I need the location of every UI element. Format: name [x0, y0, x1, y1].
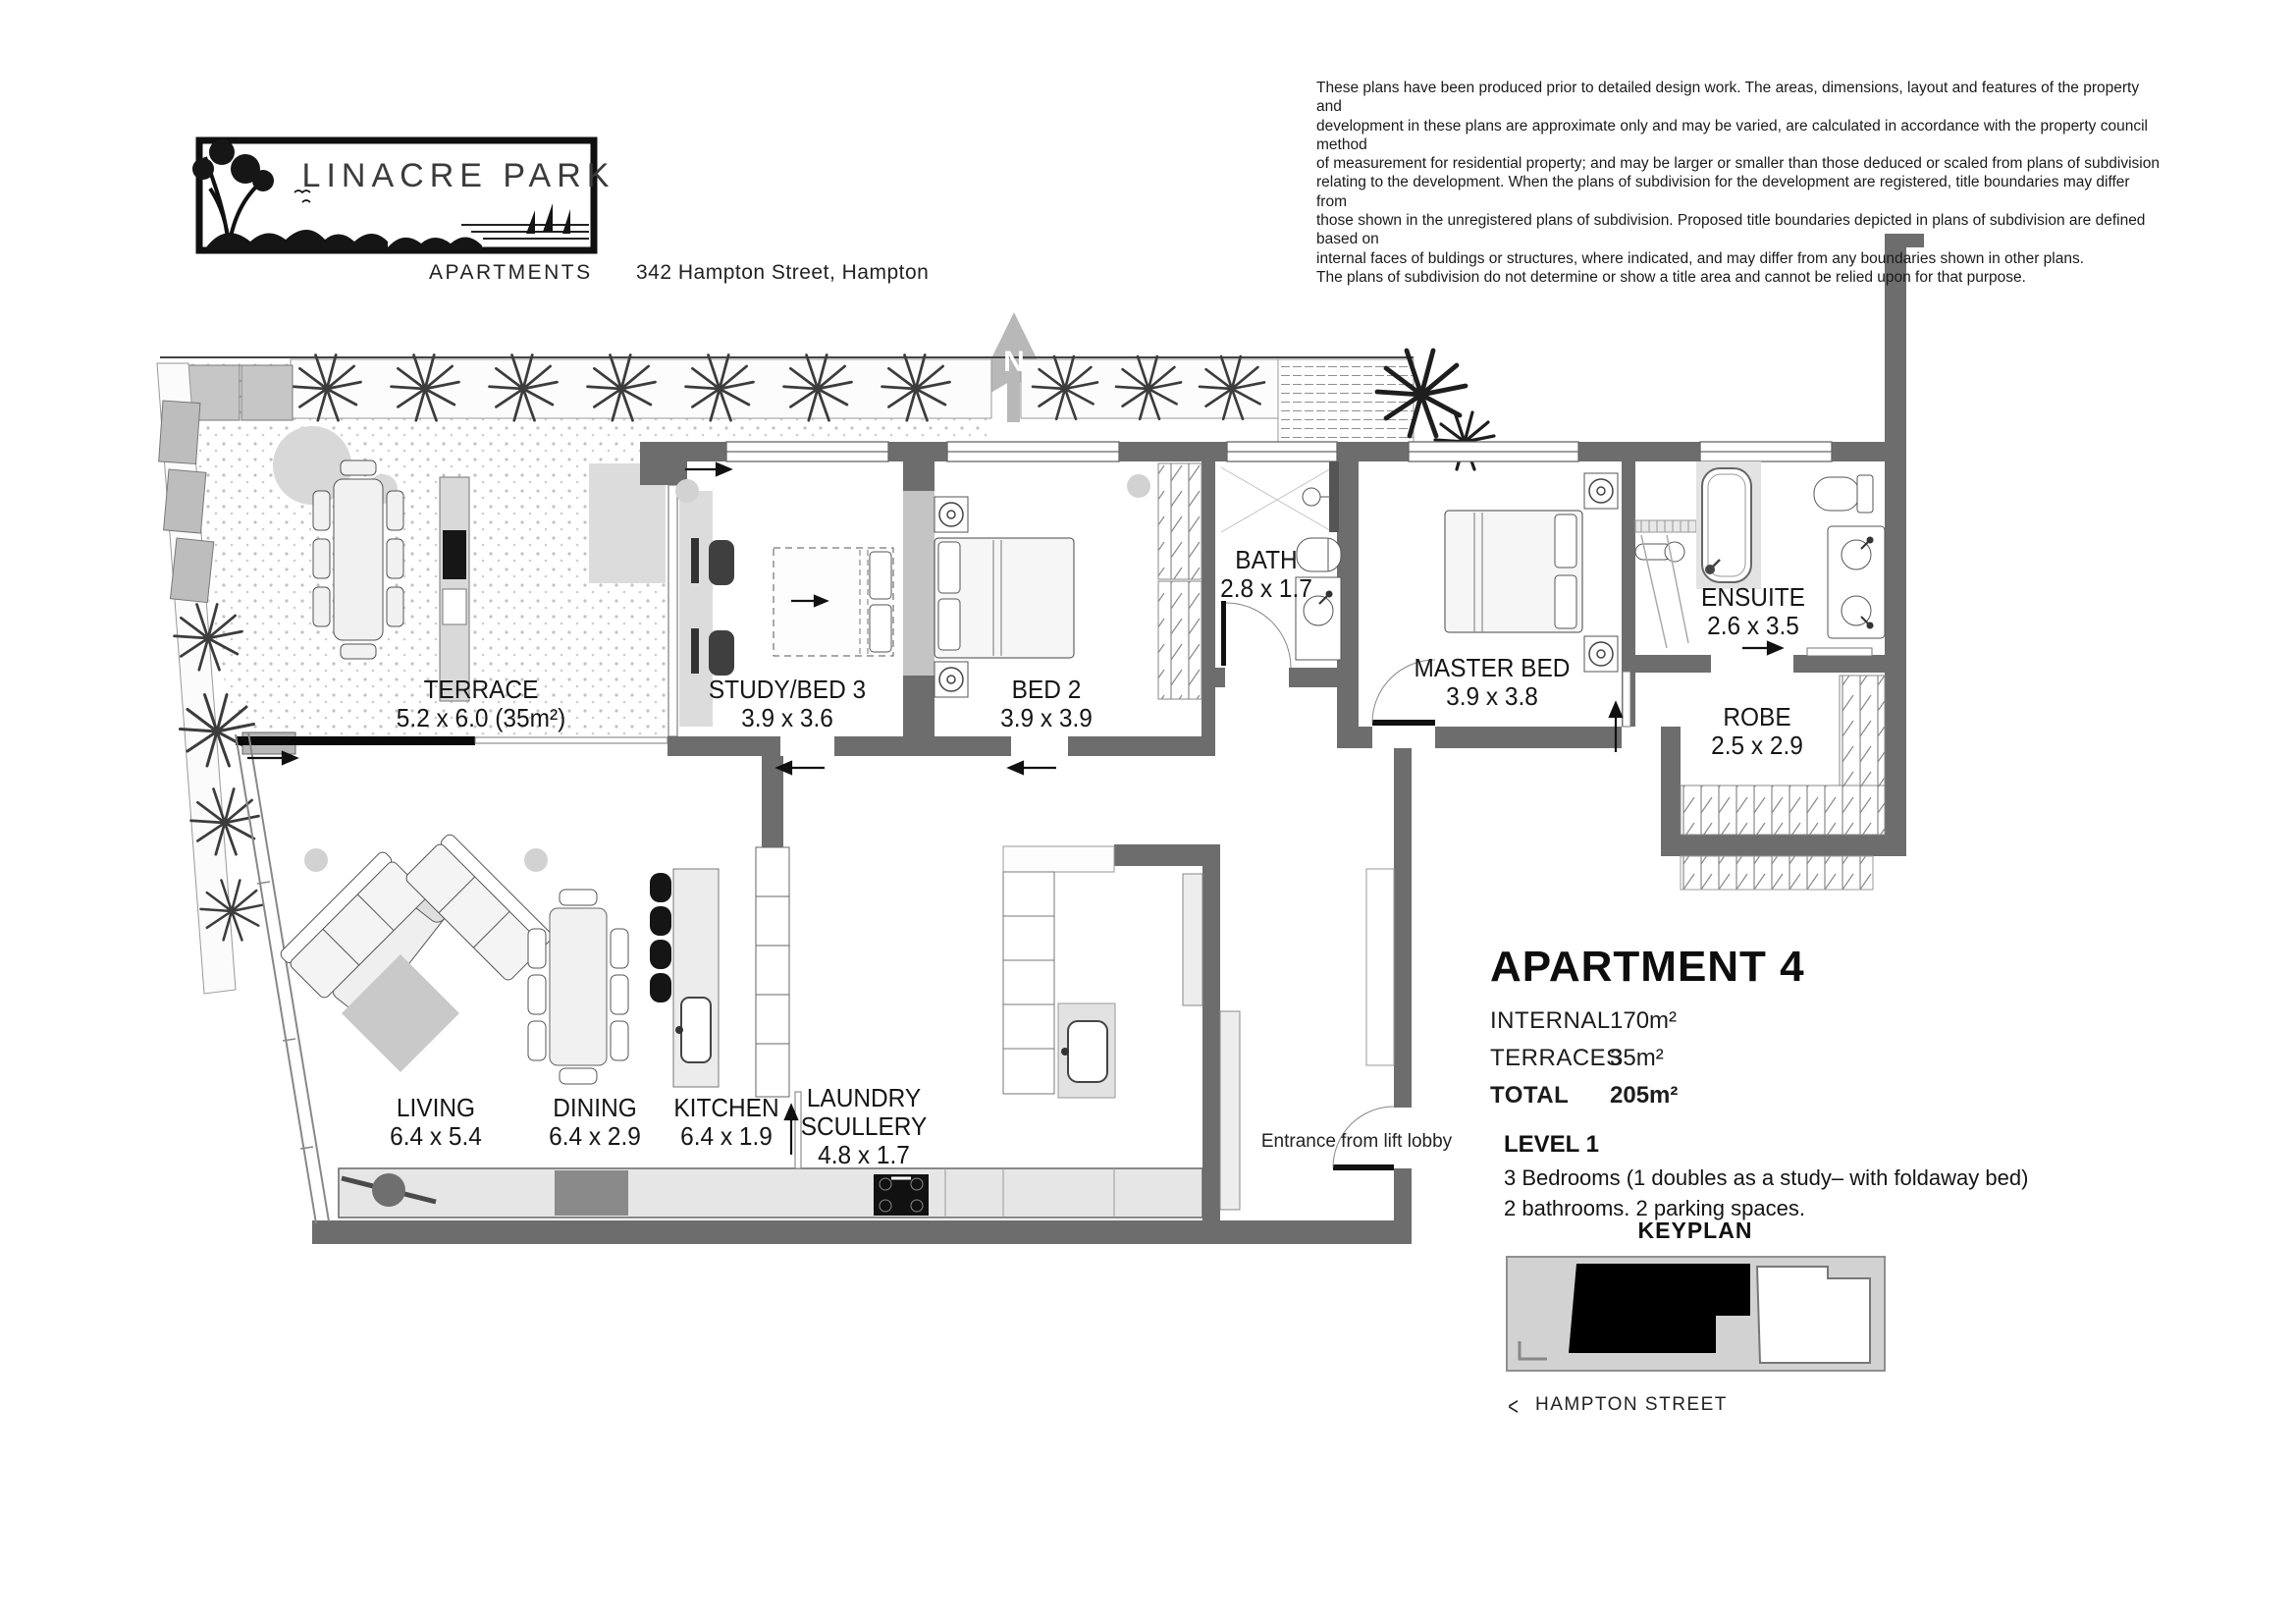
bed2-room: [934, 463, 1201, 699]
disclaimer-line: relating to the development. When the pl…: [1316, 173, 2161, 211]
robe-slider: [1623, 672, 1630, 727]
floor-plan-page: { "header": { "logo_title": "LINACRE PAR…: [0, 0, 2296, 1624]
wardrobe: [1158, 463, 1201, 579]
stool: [650, 873, 671, 902]
room-label-study: STUDY/BED 3 3.9 x 3.6: [709, 676, 866, 732]
cabinets: [1003, 872, 1054, 1094]
room-name: MASTER BED: [1415, 654, 1571, 682]
room-label-laundry: LAUNDRY SCULLERY 4.8 x 1.7: [801, 1084, 928, 1169]
room-dims: 5.2 x 6.0 (35m²): [397, 704, 566, 732]
terrace-slider: [236, 736, 475, 745]
room-dims: 6.4 x 5.4: [390, 1122, 482, 1151]
ensuite-slider: [1807, 648, 1872, 656]
desk-chair: [709, 630, 734, 676]
logo-title: LINACRE PARK: [302, 157, 615, 195]
level-block: LEVEL 1 3 Bedrooms (1 doubles as a study…: [1504, 1131, 2040, 1221]
pantry: [1220, 1011, 1240, 1210]
room-dims: 3.9 x 3.8: [1415, 682, 1571, 711]
pantry: [1183, 874, 1202, 1005]
room-label-kitchen: KITCHEN 6.4 x 1.9: [673, 1094, 778, 1151]
divider-wall: [903, 491, 934, 676]
room-name: BED 2: [1000, 676, 1093, 704]
room-label-bath: BATH 2.8 x 1.7: [1220, 546, 1312, 603]
room-name: KITCHEN: [673, 1094, 778, 1122]
info-row-terraces: TERRACES 35m²: [1490, 1045, 2040, 1072]
info-label: INTERNAL: [1490, 1007, 1610, 1035]
disclaimer-line: The plans of subdivision do not determin…: [1316, 268, 2161, 287]
sink: [681, 998, 711, 1062]
room-dims: 6.4 x 1.9: [673, 1122, 778, 1151]
wardrobe: [1681, 785, 1885, 835]
room-name: ROBE: [1711, 703, 1803, 731]
room-label-master: MASTER BED 3.9 x 3.8: [1415, 654, 1571, 711]
stool: [650, 973, 671, 1002]
stool: [650, 906, 671, 936]
level-desc: 2 bathrooms. 2 parking spaces.: [1504, 1196, 2040, 1221]
room-dims: 2.5 x 2.9: [1711, 731, 1803, 760]
room-name: TERRACE: [397, 676, 566, 704]
room-label-bed2: BED 2 3.9 x 3.9: [1000, 676, 1093, 732]
walkthrough-shower: [1635, 520, 1696, 648]
planter-top: [291, 359, 991, 418]
room-dims: 4.8 x 1.7: [801, 1141, 928, 1169]
info-value: 35m²: [1610, 1045, 1664, 1072]
north-label: N: [1003, 346, 1025, 379]
room-dims: 3.9 x 3.9: [1000, 704, 1093, 732]
disclaimer: These plans have been produced prior to …: [1316, 79, 2161, 287]
info-value: 205m²: [1610, 1082, 1678, 1110]
master-door: [1372, 720, 1435, 726]
tv: [372, 1173, 405, 1207]
level-desc: 3 Bedrooms (1 doubles as a study– with f…: [1504, 1165, 2040, 1191]
info-label: TERRACES: [1490, 1045, 1610, 1072]
tall-cabinets: [756, 847, 789, 1097]
level-title: LEVEL 1: [1504, 1131, 2040, 1159]
disclaimer-line: those shown in the unregistered plans of…: [1316, 211, 2161, 249]
desk-chair: [709, 540, 734, 585]
bench: [339, 1168, 1202, 1218]
info-row-internal: INTERNAL 170m²: [1490, 1007, 2040, 1035]
keyplan: [1507, 1257, 1885, 1371]
room-dims: 2.6 x 3.5: [1701, 612, 1805, 640]
room-name: LAUNDRY: [801, 1084, 928, 1112]
study-glazing: [668, 485, 677, 736]
entry: [1333, 869, 1394, 1170]
room-name: DINING: [549, 1094, 641, 1122]
wardrobe: [1158, 581, 1201, 699]
stool: [650, 940, 671, 969]
keyplan-title: KEYPLAN: [1638, 1218, 1753, 1244]
room-name: BATH: [1220, 546, 1312, 574]
info-value: 170m²: [1610, 1007, 1677, 1035]
toilet: [1814, 477, 1859, 511]
room-label-ensuite: ENSUITE 2.6 x 3.5: [1701, 583, 1805, 640]
room-label-terrace: TERRACE 5.2 x 6.0 (35m²): [397, 676, 566, 732]
fireplace: [555, 1170, 628, 1216]
info-row-total: TOTAL 205m²: [1490, 1082, 2040, 1110]
room-name: SCULLERY: [801, 1112, 928, 1141]
dining-room: [528, 890, 628, 1084]
wardrobe: [1681, 856, 1873, 890]
room-name: ENSUITE: [1701, 583, 1805, 612]
room-dims: 2.8 x 1.7: [1220, 574, 1312, 603]
disclaimer-line: internal faces of buldings or structures…: [1316, 249, 2161, 268]
room-dims: 6.4 x 2.9: [549, 1122, 641, 1151]
apartment-info: APARTMENT 4 INTERNAL 170m² TERRACES 35m²…: [1490, 943, 2040, 1226]
room-label-dining: DINING 6.4 x 2.9: [549, 1094, 641, 1151]
laundry-sink: [1068, 1021, 1107, 1082]
brand-label: APARTMENTS: [429, 261, 593, 285]
disclaimer-line: of measurement for residential property;…: [1316, 154, 2161, 173]
room-label-living: LIVING 6.4 x 5.4: [390, 1094, 482, 1151]
room-label-robe: ROBE 2.5 x 2.9: [1711, 703, 1803, 760]
entrance-note: Entrance from lift lobby: [1261, 1131, 1452, 1153]
lift-shaft: [1366, 869, 1394, 1065]
street-label: HAMPTON STREET: [1535, 1394, 1728, 1416]
room-name: LIVING: [390, 1094, 482, 1122]
bbq-grill: [443, 530, 466, 579]
bath-door: [1221, 601, 1226, 666]
dining-table: [550, 908, 607, 1065]
address: 342 Hampton Street, Hampton: [636, 261, 929, 285]
room-dims: 3.9 x 3.6: [709, 704, 866, 732]
wardrobe: [1840, 676, 1885, 785]
room-name: STUDY/BED 3: [709, 676, 866, 704]
chevron-left-icon: <: [1508, 1391, 1519, 1422]
cooktop: [874, 1174, 929, 1216]
disclaimer-line: development in these plans are approxima…: [1316, 117, 2161, 155]
entry-door: [1333, 1164, 1394, 1170]
info-label: TOTAL: [1490, 1082, 1610, 1110]
apartment-title: APARTMENT 4: [1490, 943, 2040, 992]
disclaimer-line: These plans have been produced prior to …: [1316, 79, 2161, 117]
